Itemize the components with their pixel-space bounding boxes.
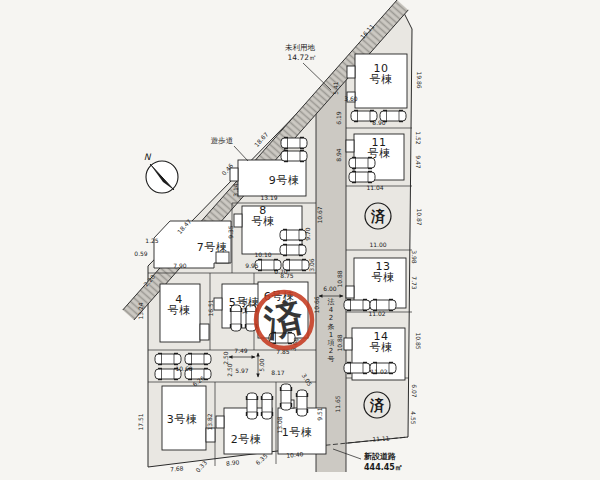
svg-text:済: 済: [370, 208, 386, 224]
site-plan-drawing: N 遊歩道 未利用地 14.72㎡ 新設道路 444.45㎡ 法42条1項2号 …: [0, 0, 600, 480]
dimension-label: 1.25: [145, 237, 159, 244]
house-detail-5: [214, 298, 222, 310]
lot-label-9号棟: 9号棟: [269, 174, 300, 187]
dimension-label: 11.11: [372, 434, 390, 442]
dimension-label: 8.75: [280, 272, 294, 279]
dimension-label: 10.60: [175, 365, 192, 372]
dimension-label: 17.51: [137, 413, 144, 430]
dimension-label: 10.88: [336, 270, 343, 287]
dimension-label: 8.17: [271, 369, 285, 376]
dimension-label: 8.90: [372, 119, 386, 126]
car-icon: [296, 390, 308, 416]
walkway-label: 遊歩道: [211, 136, 234, 145]
car-icon: [344, 362, 370, 374]
dimension-label: 3.98: [411, 250, 418, 264]
dimension-label: 10.67: [316, 206, 323, 223]
dimension-label: 11.65: [334, 395, 341, 412]
dimension-label: 6.07: [411, 384, 418, 398]
dimension-label: 2.50: [226, 363, 233, 377]
car-icon: [281, 150, 307, 162]
house-detail-8: [234, 214, 242, 227]
new-road-label-line1: 新設道路: [363, 451, 396, 461]
dimension-label: 7.90: [173, 262, 187, 269]
dimension-label: 9.35: [227, 225, 234, 239]
car-icon: [155, 353, 181, 365]
dimension-label: 2.50: [222, 351, 229, 365]
dimension-label: 13.19: [260, 194, 277, 201]
dimension-label: 11.04: [366, 184, 383, 191]
dimension-label: 13.82: [206, 413, 213, 430]
dimension-label: 9.70: [304, 227, 311, 241]
dimension-label: 11.02: [368, 310, 385, 317]
dimension-label: 5.00: [258, 358, 265, 372]
unused-land-label-line2: 14.72㎡: [288, 53, 317, 62]
dimension-label: 8.90: [226, 458, 240, 466]
dimension-label: 9.51: [316, 407, 323, 421]
lot-label-7号棟: 7号棟: [197, 241, 228, 254]
dimension-label: 7.68: [170, 465, 184, 473]
north-label: N: [144, 152, 152, 162]
house-detail-13: [346, 286, 354, 298]
dimension-label: 11.00: [369, 241, 386, 248]
dimension-label: 19.86: [416, 71, 423, 88]
car-icon: [280, 229, 306, 241]
house-detail-2: [216, 416, 224, 428]
car-icon: [280, 244, 306, 256]
car-icon: [349, 171, 375, 183]
dimension-label: 13.01: [241, 297, 248, 314]
dimension-label: 13.24: [137, 302, 144, 319]
dimension-label: 7.73: [411, 276, 418, 290]
dimension-label: 5.41: [332, 81, 339, 95]
dimension-label: 10.85: [415, 332, 422, 349]
car-icon: [246, 393, 258, 419]
dimension-label: 3.60: [344, 95, 358, 102]
dimension-label: 10.66: [313, 296, 320, 313]
car-icon: [280, 384, 292, 410]
dimension-label: 13.08: [276, 416, 283, 433]
compass-icon: N: [144, 152, 178, 193]
dimension-label: 10.88: [336, 334, 343, 351]
lot-label-2号棟: 2号棟: [231, 433, 262, 446]
car-icon: [281, 137, 307, 149]
dimension-label: 11.02: [370, 368, 387, 375]
new-road-label-line2: 444.45㎡: [364, 463, 403, 472]
house-detail-4: [200, 324, 209, 340]
dimension-label: 10.10: [254, 251, 271, 258]
car-icon: [185, 353, 211, 365]
dimension-label: 6.19: [335, 111, 342, 125]
dimension-label: 5.97: [235, 367, 249, 374]
unused-land-label-line1: 未利用地: [285, 43, 316, 52]
dimension-label: 3.06: [308, 258, 315, 272]
car-icon: [261, 393, 273, 419]
dimension-label: 8.94: [335, 148, 342, 162]
dimension-label: 10.87: [416, 208, 423, 225]
dimension-label: 7.49: [234, 347, 248, 354]
house-detail-10a: [347, 66, 355, 78]
dimension-label: 6.00: [323, 285, 337, 292]
house-detail-14: [344, 338, 352, 350]
lot-label-3号棟: 3号棟: [167, 413, 198, 426]
house-detail-11: [346, 140, 354, 152]
dimension-label: 1.52: [415, 131, 422, 145]
dimension-label: 10.40: [286, 450, 304, 458]
dimension-label: 4.55: [410, 411, 417, 425]
dimension-label: 9.47: [415, 155, 422, 169]
dimension-label: 3.14: [232, 183, 239, 197]
dimension-label: 9.95: [245, 262, 259, 269]
lot-label-1号棟: 1号棟: [282, 426, 313, 439]
dimension-label: 16.51: [207, 299, 214, 316]
site-plan-svg: N 遊歩道 未利用地 14.72㎡ 新設道路 444.45㎡ 法42条1項2号 …: [0, 0, 600, 480]
dimension-label: 0.59: [134, 250, 148, 257]
car-icon: [344, 299, 370, 311]
svg-text:済: 済: [369, 397, 385, 413]
